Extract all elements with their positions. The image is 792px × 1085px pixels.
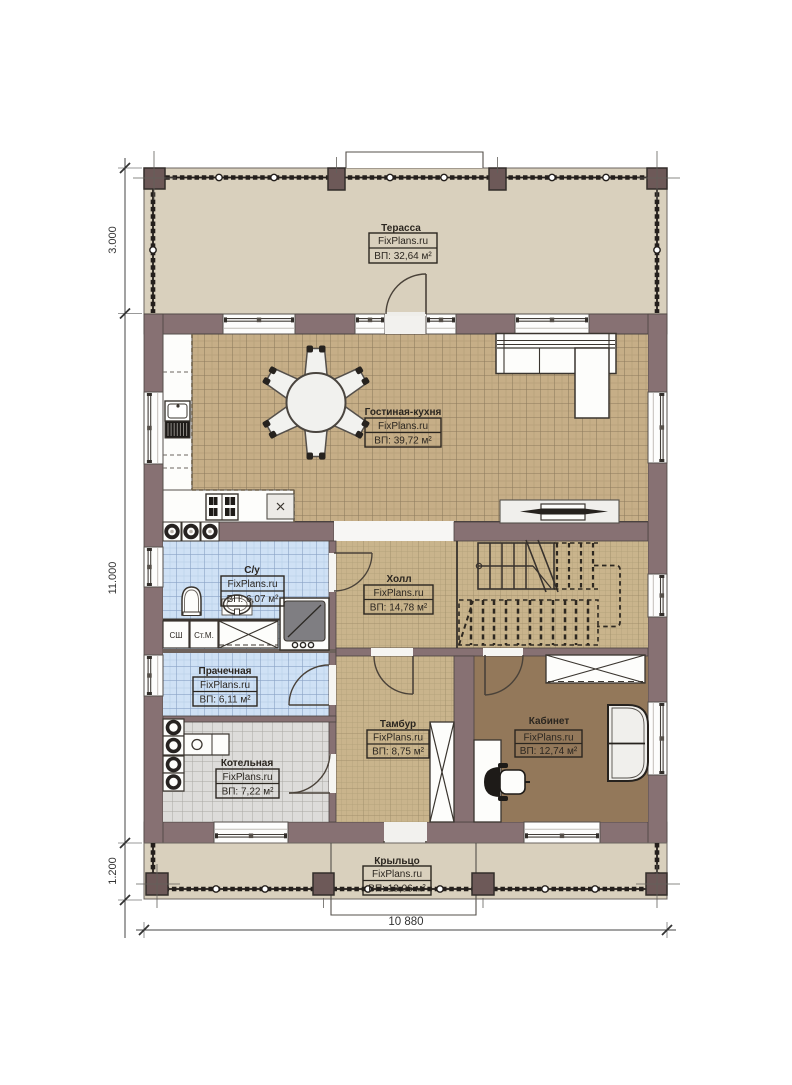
svg-text:11.000: 11.000 (107, 562, 119, 595)
svg-text:Прачечная: Прачечная (199, 666, 252, 677)
svg-text:СШ: СШ (169, 631, 182, 640)
svg-text:ВП: 39,72 м²: ВП: 39,72 м² (374, 435, 432, 446)
svg-text:ВП: 6,07 м²: ВП: 6,07 м² (227, 594, 280, 605)
svg-text:Ст.М.: Ст.М. (194, 631, 214, 640)
svg-text:ВП: 13,06 м²: ВП: 13,06 м² (368, 883, 426, 894)
svg-text:Холл: Холл (386, 574, 411, 585)
svg-text:FixPlans.ru: FixPlans.ru (200, 680, 250, 691)
svg-text:FixPlans.ru: FixPlans.ru (372, 869, 422, 880)
svg-text:Котельная: Котельная (221, 758, 274, 769)
svg-text:ВП: 8,75 м²: ВП: 8,75 м² (372, 747, 425, 758)
svg-text:Тамбур: Тамбур (380, 718, 416, 730)
svg-text:FixPlans.ru: FixPlans.ru (222, 772, 272, 783)
svg-text:ВП: 14,78 м²: ВП: 14,78 м² (370, 602, 428, 613)
svg-text:ВП: 32,64 м²: ВП: 32,64 м² (374, 251, 432, 262)
svg-text:ВП: 6,11 м²: ВП: 6,11 м² (199, 694, 251, 705)
svg-text:Кабинет: Кабинет (529, 715, 570, 727)
svg-text:FixPlans.ru: FixPlans.ru (523, 732, 573, 743)
svg-text:ВП: 7,22 м²: ВП: 7,22 м² (222, 786, 275, 797)
svg-text:FixPlans.ru: FixPlans.ru (227, 579, 277, 590)
svg-text:3.000: 3.000 (107, 226, 119, 254)
svg-text:FixPlans.ru: FixPlans.ru (373, 588, 423, 599)
svg-text:1.200: 1.200 (107, 857, 119, 885)
svg-text:FixPlans.ru: FixPlans.ru (378, 421, 428, 432)
svg-text:С/у: С/у (244, 565, 260, 576)
svg-text:ВП: 12,74 м²: ВП: 12,74 м² (520, 746, 578, 757)
svg-text:FixPlans.ru: FixPlans.ru (373, 733, 423, 744)
svg-text:FixPlans.ru: FixPlans.ru (378, 236, 428, 247)
svg-text:10 880: 10 880 (388, 916, 423, 928)
svg-text:Гостиная-кухня: Гостиная-кухня (365, 407, 442, 418)
